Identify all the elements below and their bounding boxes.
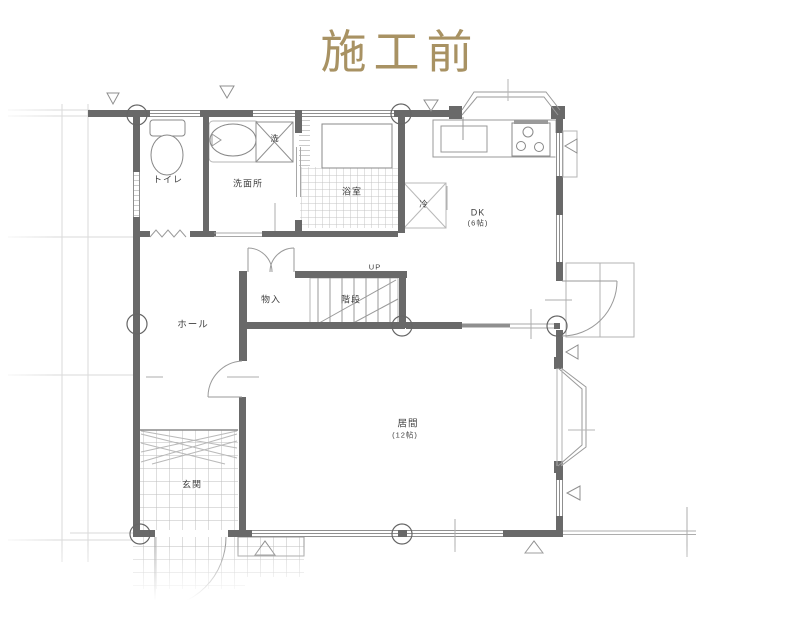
living-bay-window — [557, 368, 595, 466]
room-label-bathroom: 浴室 — [342, 188, 362, 197]
bathtub — [322, 124, 392, 168]
room-label-dk: DK — [471, 209, 486, 218]
room-label-toilet: トイレ — [153, 176, 183, 185]
room-label-stairs: 階段 — [341, 296, 361, 305]
kitchen-bay-window — [462, 79, 560, 115]
room-label-living-size: (12帖) — [392, 431, 418, 439]
room-label-washroom: 洗面所 — [233, 180, 263, 189]
stairs-up-label: UP — [369, 263, 381, 271]
room-label-closet: 物入 — [261, 296, 281, 305]
room-label-washer: 洗 — [271, 135, 280, 143]
washbasin-fixture — [209, 121, 259, 162]
side-porch — [566, 263, 634, 337]
room-label-hall: ホール — [177, 320, 209, 330]
toilet-fixture — [150, 120, 185, 175]
screenshot-root: トイレ 洗面所 洗 浴室 冷 DK (6帖) 物入 階段 UP ホール 玄関 居… — [0, 0, 800, 634]
room-label-fridge: 冷 — [419, 200, 429, 209]
floorplan-drawing — [0, 0, 800, 634]
page-title: 施工前 — [0, 16, 800, 82]
room-label-dk-size: (6帖) — [468, 219, 489, 227]
room-label-living: 居間 — [397, 419, 418, 429]
room-label-entrance: 玄関 — [181, 481, 203, 490]
kitchen-fixtures — [433, 117, 556, 157]
site-grid-lines — [8, 104, 133, 562]
